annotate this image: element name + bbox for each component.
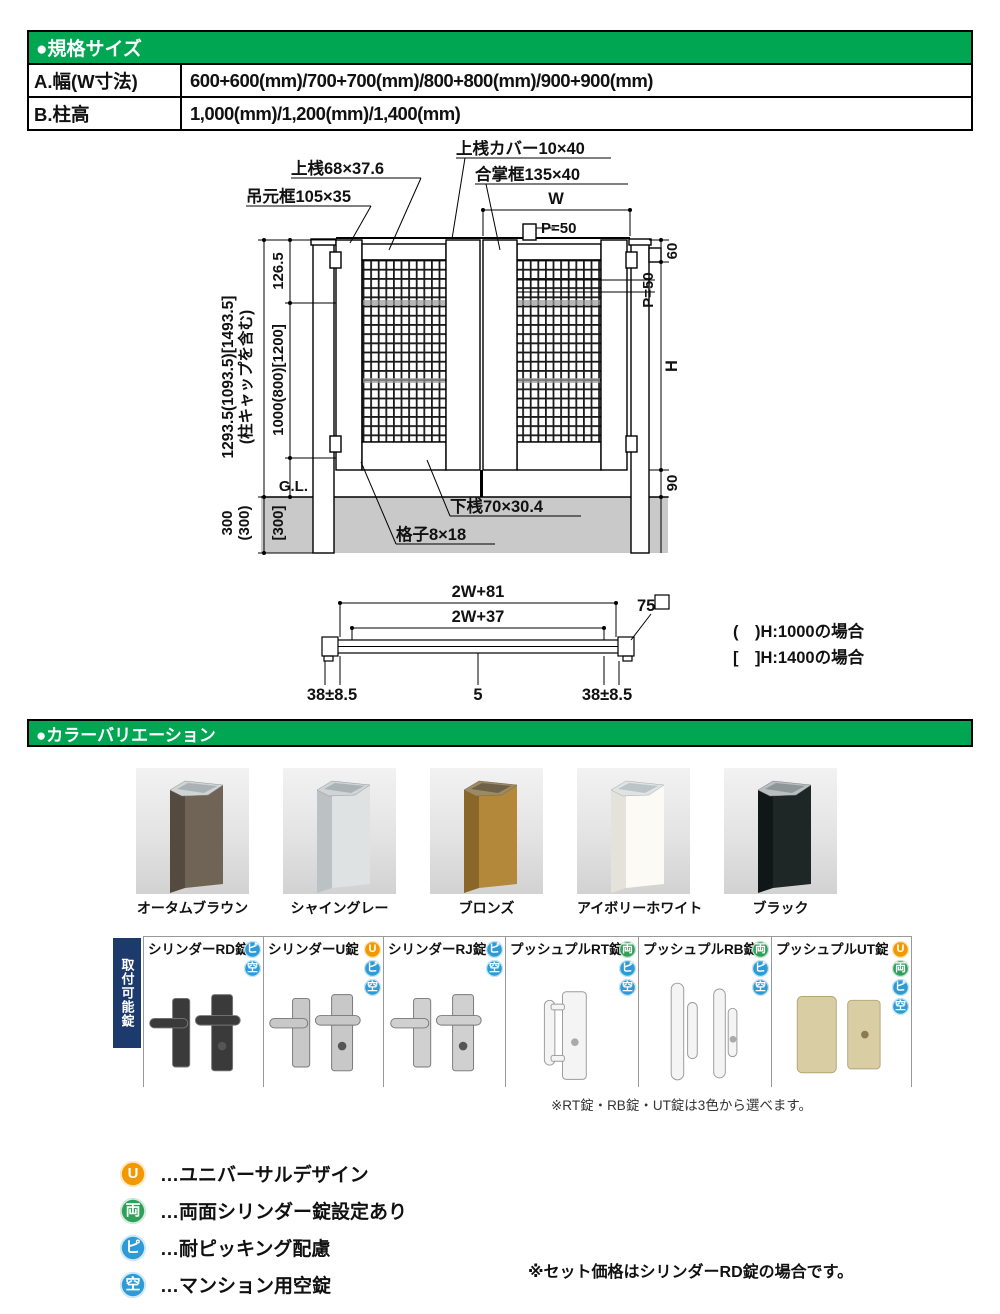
badge-stack: ピ 空 <box>244 941 261 977</box>
spec-table-title: ●規格サイズ <box>29 32 971 65</box>
legend-row-double: 両 …両面シリンダー錠設定あり <box>120 1192 407 1229</box>
badge-universal-icon: U <box>892 941 909 958</box>
post-photo <box>724 768 837 894</box>
right-bottom-rail <box>517 442 601 470</box>
label-p50-top: P=50 <box>541 220 576 237</box>
badge-double-icon: 両 <box>619 941 636 958</box>
lock-name: プッシュプルUT錠 <box>772 937 911 958</box>
legend-text: …耐ピッキング配慮 <box>160 1234 330 1261</box>
spec-row-height-value: 1,000(mm)/1,200(mm)/1,400(mm) <box>182 98 460 129</box>
label-hanging-stile: 吊元框105×35 <box>246 186 351 206</box>
locks-side-label: 取付可能錠 <box>113 938 141 1048</box>
right-post-cap <box>629 239 651 245</box>
post-front <box>773 781 811 888</box>
latch-catch <box>523 224 536 240</box>
label-5: 5 <box>473 686 482 704</box>
label-bottom-rail: 下桟70×30.4 <box>450 496 544 516</box>
post-side <box>464 781 479 893</box>
set-price-note: ※セット価格はシリンダーRD錠の場合です。 <box>528 1258 853 1282</box>
lock-col-pushpull-rb: プッシュプルRB錠 両 ピ 空 <box>639 937 772 1087</box>
badge-double-icon: 両 <box>892 960 909 977</box>
lock-col-cylinder-rj: シリンダーRJ錠 ピ 空 <box>384 937 506 1087</box>
label-meeting-stile: 合掌框135×40 <box>475 164 580 184</box>
badge-pick-icon: ピ <box>486 941 503 958</box>
badge-stack: ピ 空 <box>486 941 503 977</box>
color-name: オータムブラウン <box>136 898 249 918</box>
locks-section: 取付可能錠 シリンダーRD錠 ピ 空 シリンダーU錠 U ピ 空 シ <box>113 936 973 1116</box>
spec-row-height: B.柱高 1,000(mm)/1,200(mm)/1,400(mm) <box>29 96 971 129</box>
post-side <box>611 781 626 893</box>
lock-columns: シリンダーRD錠 ピ 空 シリンダーU錠 U ピ 空 シリンダーRJ錠 ピ <box>143 936 912 1087</box>
post-front <box>185 781 223 888</box>
label-embed-p300: (300) <box>236 505 253 540</box>
color-swatch: アイボリーホワイト <box>577 768 690 918</box>
label-top-rail: 上桟68×37.6 <box>291 158 384 178</box>
label-2w37: 2W+37 <box>452 608 505 626</box>
label-90: 90 <box>664 475 681 492</box>
legend-row-universal: U …ユニバーサルデザイン <box>120 1155 407 1192</box>
post-front <box>332 781 370 888</box>
lock-col-pushpull-rt: プッシュプルRT錠 両 ピ 空 <box>506 937 639 1087</box>
post-side <box>170 781 185 893</box>
post-front <box>626 781 664 888</box>
post-side <box>758 781 773 893</box>
hinge <box>626 436 637 452</box>
badge-double-icon: 両 <box>752 941 769 958</box>
post-front <box>479 781 517 888</box>
badge-pick-icon: ピ <box>364 960 381 977</box>
note-h1400: [ ]H:1400の場合 <box>733 647 865 667</box>
lock-photo-pushpull-rt <box>514 987 630 1087</box>
label-38-left: 38±8.5 <box>307 686 357 704</box>
color-swatch: ブラック <box>724 768 837 918</box>
spec-row-width: A.幅(W寸法) 600+600(mm)/700+700(mm)/800+800… <box>29 65 971 96</box>
badge-pick-icon: ピ <box>752 960 769 977</box>
label-w: W <box>548 190 564 208</box>
left-mesh <box>362 260 446 442</box>
spec-table: ●規格サイズ A.幅(W寸法) 600+600(mm)/700+700(mm)/… <box>27 30 973 131</box>
badge-double-icon: 両 <box>120 1198 146 1224</box>
right-hanging-stile <box>601 240 627 470</box>
legend-text: …両面シリンダー錠設定あり <box>160 1197 407 1224</box>
badge-pick-icon: ピ <box>619 960 636 977</box>
label-lattice: 格子8×18 <box>396 524 466 544</box>
label-p50-right: P=50 <box>640 272 657 307</box>
lock-photo-cylinder-rd <box>146 987 262 1087</box>
hinge <box>330 436 341 452</box>
badge-vacant-icon: 空 <box>244 960 261 977</box>
badge-pick-icon: ピ <box>120 1235 146 1261</box>
badge-universal-icon: U <box>120 1161 146 1187</box>
hinge-detail <box>649 248 661 262</box>
label-cap-note: (柱キャップを含む) <box>236 310 255 444</box>
spec-row-width-label: A.幅(W寸法) <box>29 65 182 96</box>
label-60: 60 <box>664 243 681 260</box>
legend-row-pick: ピ …耐ピッキング配慮 <box>120 1229 407 1266</box>
color-swatch: ブロンズ <box>430 768 543 918</box>
post-photo <box>577 768 690 894</box>
post-side <box>317 781 332 893</box>
legend: U …ユニバーサルデザイン 両 …両面シリンダー錠設定あり ピ …耐ピッキング配… <box>120 1155 407 1303</box>
color-swatch: オータムブラウン <box>136 768 249 918</box>
legend-text: …マンション用空錠 <box>160 1271 331 1298</box>
label-h: H <box>663 360 681 372</box>
legend-row-vacant: 空 …マンション用空錠 <box>120 1266 407 1303</box>
color-name: シャイングレー <box>283 898 396 918</box>
lock-col-cylinder-rd: シリンダーRD錠 ピ 空 <box>144 937 264 1087</box>
gate-diagram: 上桟68×37.6 上桟カバー10×40 合掌框135×40 吊元框105×35… <box>203 140 923 710</box>
lock-photo-cylinder-u <box>266 987 382 1087</box>
lock-photo-cylinder-rj <box>387 987 503 1087</box>
color-swatches: オータムブラウン シャイングレー ブロンズ <box>136 768 837 918</box>
badge-pick-icon: ピ <box>244 941 261 958</box>
label-embed-b300: [300] <box>270 505 287 540</box>
label-gl: G.L. <box>279 478 308 495</box>
locks-note: ※RT錠・RB錠・UT錠は3色から選べます。 <box>551 1094 812 1114</box>
post-photo <box>283 768 396 894</box>
color-name: アイボリーホワイト <box>577 898 690 918</box>
color-section-title: ●カラーバリエーション <box>27 719 973 747</box>
spec-row-height-label: B.柱高 <box>29 98 182 129</box>
label-panel-height: 1000(800)[1200] <box>270 324 287 436</box>
left-bottom-rail <box>362 442 446 470</box>
left-meeting-stile <box>446 240 480 470</box>
lock-col-cylinder-u: シリンダーU錠 U ピ 空 <box>264 937 384 1087</box>
label-126: 126.5 <box>270 252 287 290</box>
lock-col-pushpull-ut: プッシュプルUT錠 U 両 ピ 空 <box>772 937 912 1087</box>
label-embed-300: 300 <box>219 510 236 535</box>
color-name: ブラック <box>724 898 837 918</box>
hinge <box>626 252 637 268</box>
legend-text: …ユニバーサルデザイン <box>160 1160 369 1187</box>
locks-side-label-text: 取付可能錠 <box>118 958 137 1028</box>
label-75: 75 <box>637 597 655 615</box>
badge-universal-icon: U <box>364 941 381 958</box>
right-meeting-stile <box>483 240 517 470</box>
label-38-right: 38±8.5 <box>582 686 632 704</box>
left-post <box>313 244 334 553</box>
color-swatch: シャイングレー <box>283 768 396 918</box>
left-top-rail <box>362 244 446 260</box>
badge-vacant-icon: 空 <box>120 1272 146 1298</box>
label-total-height: 1293.5(1093.5)[1493.5] <box>220 296 237 459</box>
label-2w81: 2W+81 <box>452 583 505 601</box>
lock-photo-pushpull-rb <box>647 977 763 1087</box>
hinge <box>330 252 341 268</box>
post-photo <box>136 768 249 894</box>
color-name: ブロンズ <box>430 898 543 918</box>
note-h1000: ( )H:1000の場合 <box>733 621 865 641</box>
spec-row-width-value: 600+600(mm)/700+700(mm)/800+800(mm)/900+… <box>182 65 653 96</box>
badge-vacant-icon: 空 <box>486 960 503 977</box>
post-photo <box>430 768 543 894</box>
lock-photo-pushpull-ut <box>784 987 900 1087</box>
right-top-rail <box>517 244 601 260</box>
right-mesh <box>517 260 601 442</box>
label-top-cover: 上桟カバー10×40 <box>456 140 585 158</box>
